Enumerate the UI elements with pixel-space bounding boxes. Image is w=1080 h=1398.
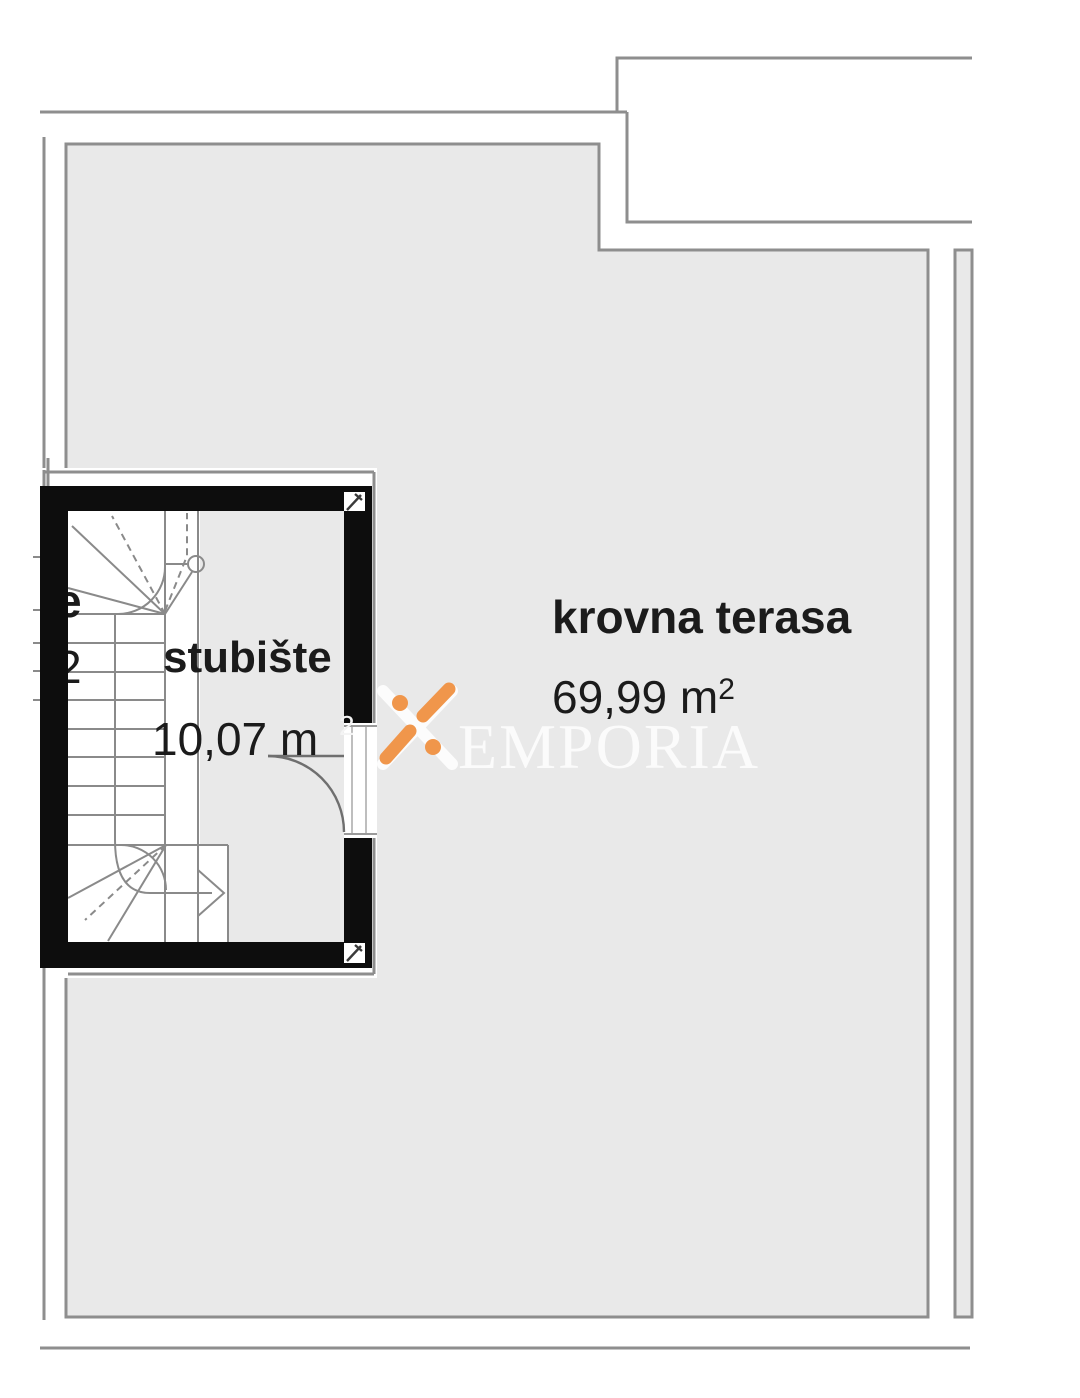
terrace-area-label: 69,99 m2 <box>552 674 735 720</box>
terrace-area-value: 69,99 m <box>552 671 718 723</box>
floor-plan-drawing: EMPORIA <box>0 0 1080 1398</box>
wall-left-overlay <box>40 486 68 968</box>
wall-right-lower <box>344 838 372 942</box>
floor-plan: EMPORIA krovna terasa 69,99 m2 stubište … <box>0 0 1080 1398</box>
staircase-area-sup-on-wall: 2 <box>339 712 355 740</box>
terrace-area-sup: 2 <box>718 673 735 706</box>
wall-right-upper-overlay <box>344 511 372 723</box>
side-strip <box>955 250 972 1317</box>
terrace-room-label: krovna terasa <box>552 594 851 640</box>
staircase-area-label: 10,07 m <box>152 716 318 762</box>
staircase-room-label: stubište <box>163 636 332 680</box>
wall-top <box>40 486 372 511</box>
wall-bottom <box>40 942 372 968</box>
